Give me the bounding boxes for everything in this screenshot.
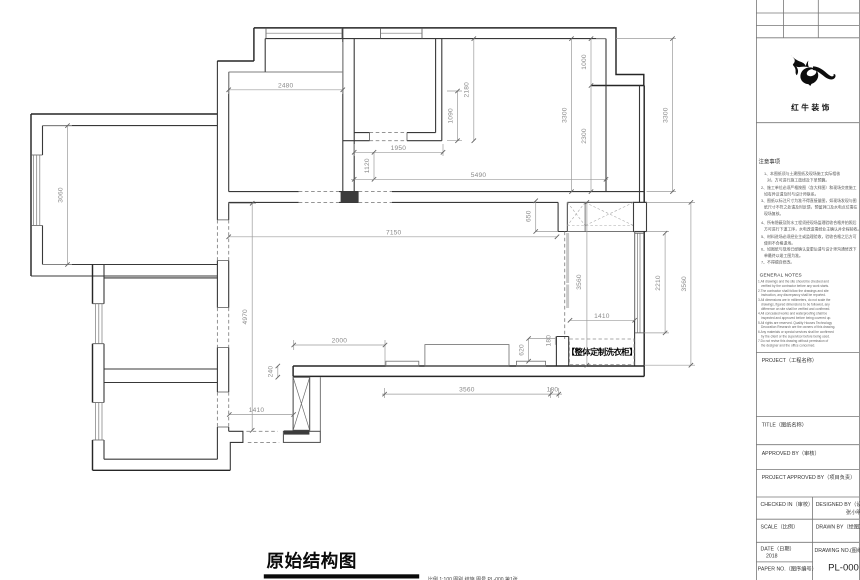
- svg-text:drawings, figured dimensions t: drawings, figured dimensions to be follo…: [761, 302, 830, 306]
- svg-text:3300: 3300: [561, 107, 568, 123]
- svg-text:APPROVED BY（审核）: APPROVED BY（审核）: [762, 449, 820, 457]
- svg-text:2.The contractor shall follow: 2.The contractor shall follow the drawin…: [758, 289, 829, 293]
- svg-text:1.All drawings and the site sh: 1.All drawings and the site should be ch…: [758, 280, 829, 284]
- svg-text:4970: 4970: [242, 309, 249, 325]
- svg-text:2180: 2180: [464, 82, 471, 98]
- svg-text:TITLE（图纸名称）: TITLE（图纸名称）: [762, 421, 807, 429]
- svg-text:【整体定制洗衣柜】: 【整体定制洗衣柜】: [567, 347, 637, 357]
- svg-text:5490: 5490: [471, 172, 487, 179]
- svg-text:verified by the contractor bef: verified by the contractor before any wo…: [761, 284, 829, 288]
- svg-text:7150: 7150: [386, 229, 402, 236]
- svg-text:3、图纸以标注尺寸为准不得直接量图，如现场发现与图: 3、图纸以标注尺寸为准不得直接量图，如现场发现与图: [761, 198, 857, 203]
- svg-text:1410: 1410: [249, 407, 265, 414]
- svg-text:PAPER NO.（图序编号）: PAPER NO.（图序编号）: [758, 565, 817, 573]
- svg-text:如有异议请及时与设计师联系。: 如有异议请及时与设计师联系。: [764, 192, 818, 197]
- svg-text:1120: 1120: [364, 158, 371, 173]
- svg-text:DATE（日期）: DATE（日期）: [761, 546, 795, 553]
- svg-text:the designer and the office co: the designer and the office concerned.: [761, 344, 815, 348]
- svg-text:6.Any materials or special ser: 6.Any materials or special services shal…: [758, 330, 834, 334]
- svg-text:240: 240: [268, 366, 275, 378]
- svg-text:3560: 3560: [576, 274, 583, 290]
- svg-text:650: 650: [526, 210, 533, 222]
- svg-text:inspected and approved before: inspected and approved before being cove…: [761, 316, 831, 320]
- svg-text:PROJECT APPROVED BY（项目负责）: PROJECT APPROVED BY（项目负责）: [762, 473, 856, 481]
- svg-text:1000: 1000: [581, 54, 588, 70]
- svg-text:DRAWN BY（绘图）: DRAWN BY（绘图）: [816, 522, 860, 530]
- svg-text:2300: 2300: [581, 128, 588, 144]
- svg-text:3.All dimensions are in millim: 3.All dimensions are in millimeters, do …: [758, 298, 831, 302]
- svg-text:CHECKED IN（审校）: CHECKED IN（审校）: [761, 500, 814, 508]
- svg-text:2480: 2480: [278, 82, 294, 89]
- svg-text:DRAWING NO.(图纸编号): DRAWING NO.(图纸编号): [815, 546, 860, 554]
- svg-text:7.Do not revise this drawing w: 7.Do not revise this drawing without per…: [758, 339, 828, 343]
- svg-text:3560: 3560: [459, 387, 475, 394]
- svg-text:difference on site shall be ve: difference on site shall be verified and…: [761, 307, 830, 311]
- svg-text:180: 180: [546, 335, 553, 347]
- svg-text:2018: 2018: [766, 554, 778, 560]
- svg-text:DESIGNED BY（设计）: DESIGNED BY（设计）: [816, 500, 860, 508]
- svg-text:PROJECT（工程名称）: PROJECT（工程名称）: [762, 356, 817, 364]
- svg-text:1、本图纸须与土建图纸及现场施工实际相核: 1、本图纸须与土建图纸及现场施工实际相核: [764, 171, 840, 176]
- svg-text:5.All rights are reserved. Qua: 5.All rights are reserved. Quality House…: [758, 321, 832, 325]
- svg-text:4、所有隐蔽及防水工程须经现场监理验收合格并拍照后: 4、所有隐蔽及防水工程须经现场监理验收合格并拍照后: [761, 220, 857, 225]
- svg-text:3060: 3060: [57, 187, 64, 203]
- svg-text:注意事项: 注意事项: [759, 158, 781, 166]
- svg-text:红牛装饰: 红牛装饰: [791, 102, 832, 112]
- svg-text:620: 620: [519, 344, 526, 356]
- svg-text:7、不得擅自修改。: 7、不得擅自修改。: [761, 260, 794, 265]
- svg-text:对，方可进行施工放线及下单预算。: 对，方可进行施工放线及下单预算。: [767, 178, 829, 183]
- svg-text:5、材料进场必须经业主或监理验收，验收合格之后方可: 5、材料进场必须经业主或监理验收，验收合格之后方可: [761, 234, 857, 239]
- svg-text:180: 180: [547, 387, 559, 394]
- svg-text:3560: 3560: [681, 276, 688, 292]
- svg-text:SCALE（比例）: SCALE（比例）: [761, 522, 799, 530]
- svg-text:GENERAL NOTES: GENERAL NOTES: [760, 272, 802, 277]
- svg-text:instruction, any discrepancy s: instruction, any discrepancy shall be re…: [761, 293, 826, 297]
- svg-text:原始结构图: 原始结构图: [267, 551, 358, 571]
- svg-text:4.All concealed works and wate: 4.All concealed works and waterproofing …: [758, 312, 827, 316]
- svg-text:2210: 2210: [655, 275, 662, 291]
- svg-text:单最终以竣工图为准。: 单最终以竣工图为准。: [764, 253, 803, 258]
- svg-text:3300: 3300: [662, 107, 669, 123]
- svg-text:2000: 2000: [332, 338, 348, 345]
- svg-text:方可进行下道工序，水电改造需经业主确认并全程验收。: 方可进行下道工序，水电改造需经业主确认并全程验收。: [764, 227, 860, 232]
- svg-text:使用不合格退场。: 使用不合格退场。: [764, 241, 795, 246]
- svg-text:by the client or the superviso: by the client or the supervisor before b…: [761, 334, 830, 338]
- svg-text:比例 1:100 图别 结施 图号 PL-000 第1张: 比例 1:100 图别 结施 图号 PL-000 第1张: [428, 576, 518, 580]
- svg-text:6、如图纸与现场已经确认变更后请与设计师沟通修改下: 6、如图纸与现场已经确认变更后请与设计师沟通修改下: [761, 247, 857, 252]
- svg-text:Decoration Research are the ow: Decoration Research are the owners of th…: [761, 325, 835, 329]
- svg-text:2、施工单位必须严格按图（含大样图）和现场交底施工: 2、施工单位必须严格按图（含大样图）和现场交底施工: [761, 185, 857, 190]
- svg-text:PL-000: PL-000: [828, 563, 859, 574]
- svg-text:1410: 1410: [594, 313, 610, 320]
- svg-text:现场复核。: 现场复核。: [764, 211, 783, 216]
- svg-text:1950: 1950: [391, 145, 407, 152]
- svg-text:1090: 1090: [447, 108, 454, 124]
- svg-text:张小明: 张小明: [846, 508, 860, 516]
- svg-text:纸尺寸不符之处请及时反馈，预留洞口及水电点位需在: 纸尺寸不符之处请及时反馈，预留洞口及水电点位需在: [764, 205, 857, 210]
